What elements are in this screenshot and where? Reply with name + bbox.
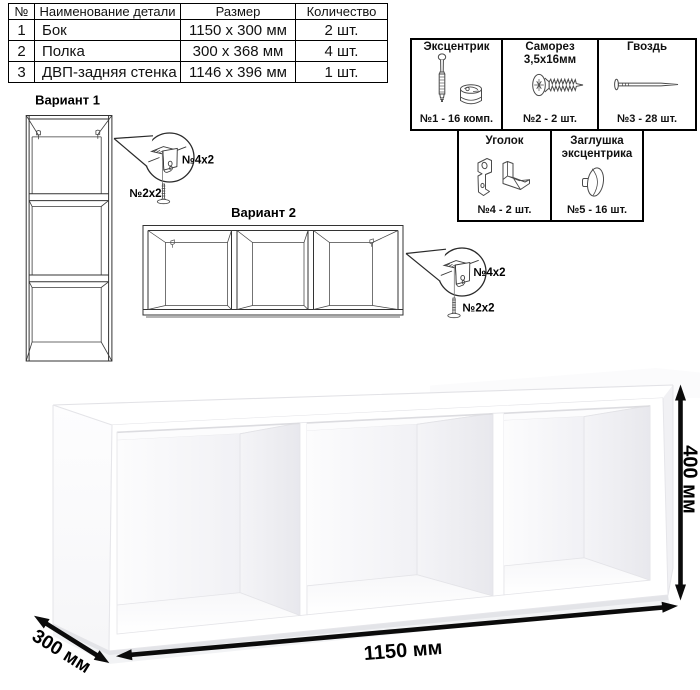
svg-text:400 мм: 400 мм bbox=[679, 445, 700, 514]
svg-text:№4х2: №4х2 bbox=[182, 155, 214, 167]
svg-text:№2х2: №2х2 bbox=[463, 303, 495, 315]
svg-text:Вариант 2: Вариант 2 bbox=[231, 205, 296, 220]
svg-text:1150 мм: 1150 мм bbox=[363, 637, 443, 665]
svg-text:Вариант 1: Вариант 1 bbox=[35, 93, 100, 108]
svg-text:№2х2: №2х2 bbox=[130, 188, 162, 200]
svg-text:№4х2: №4х2 bbox=[474, 267, 506, 279]
